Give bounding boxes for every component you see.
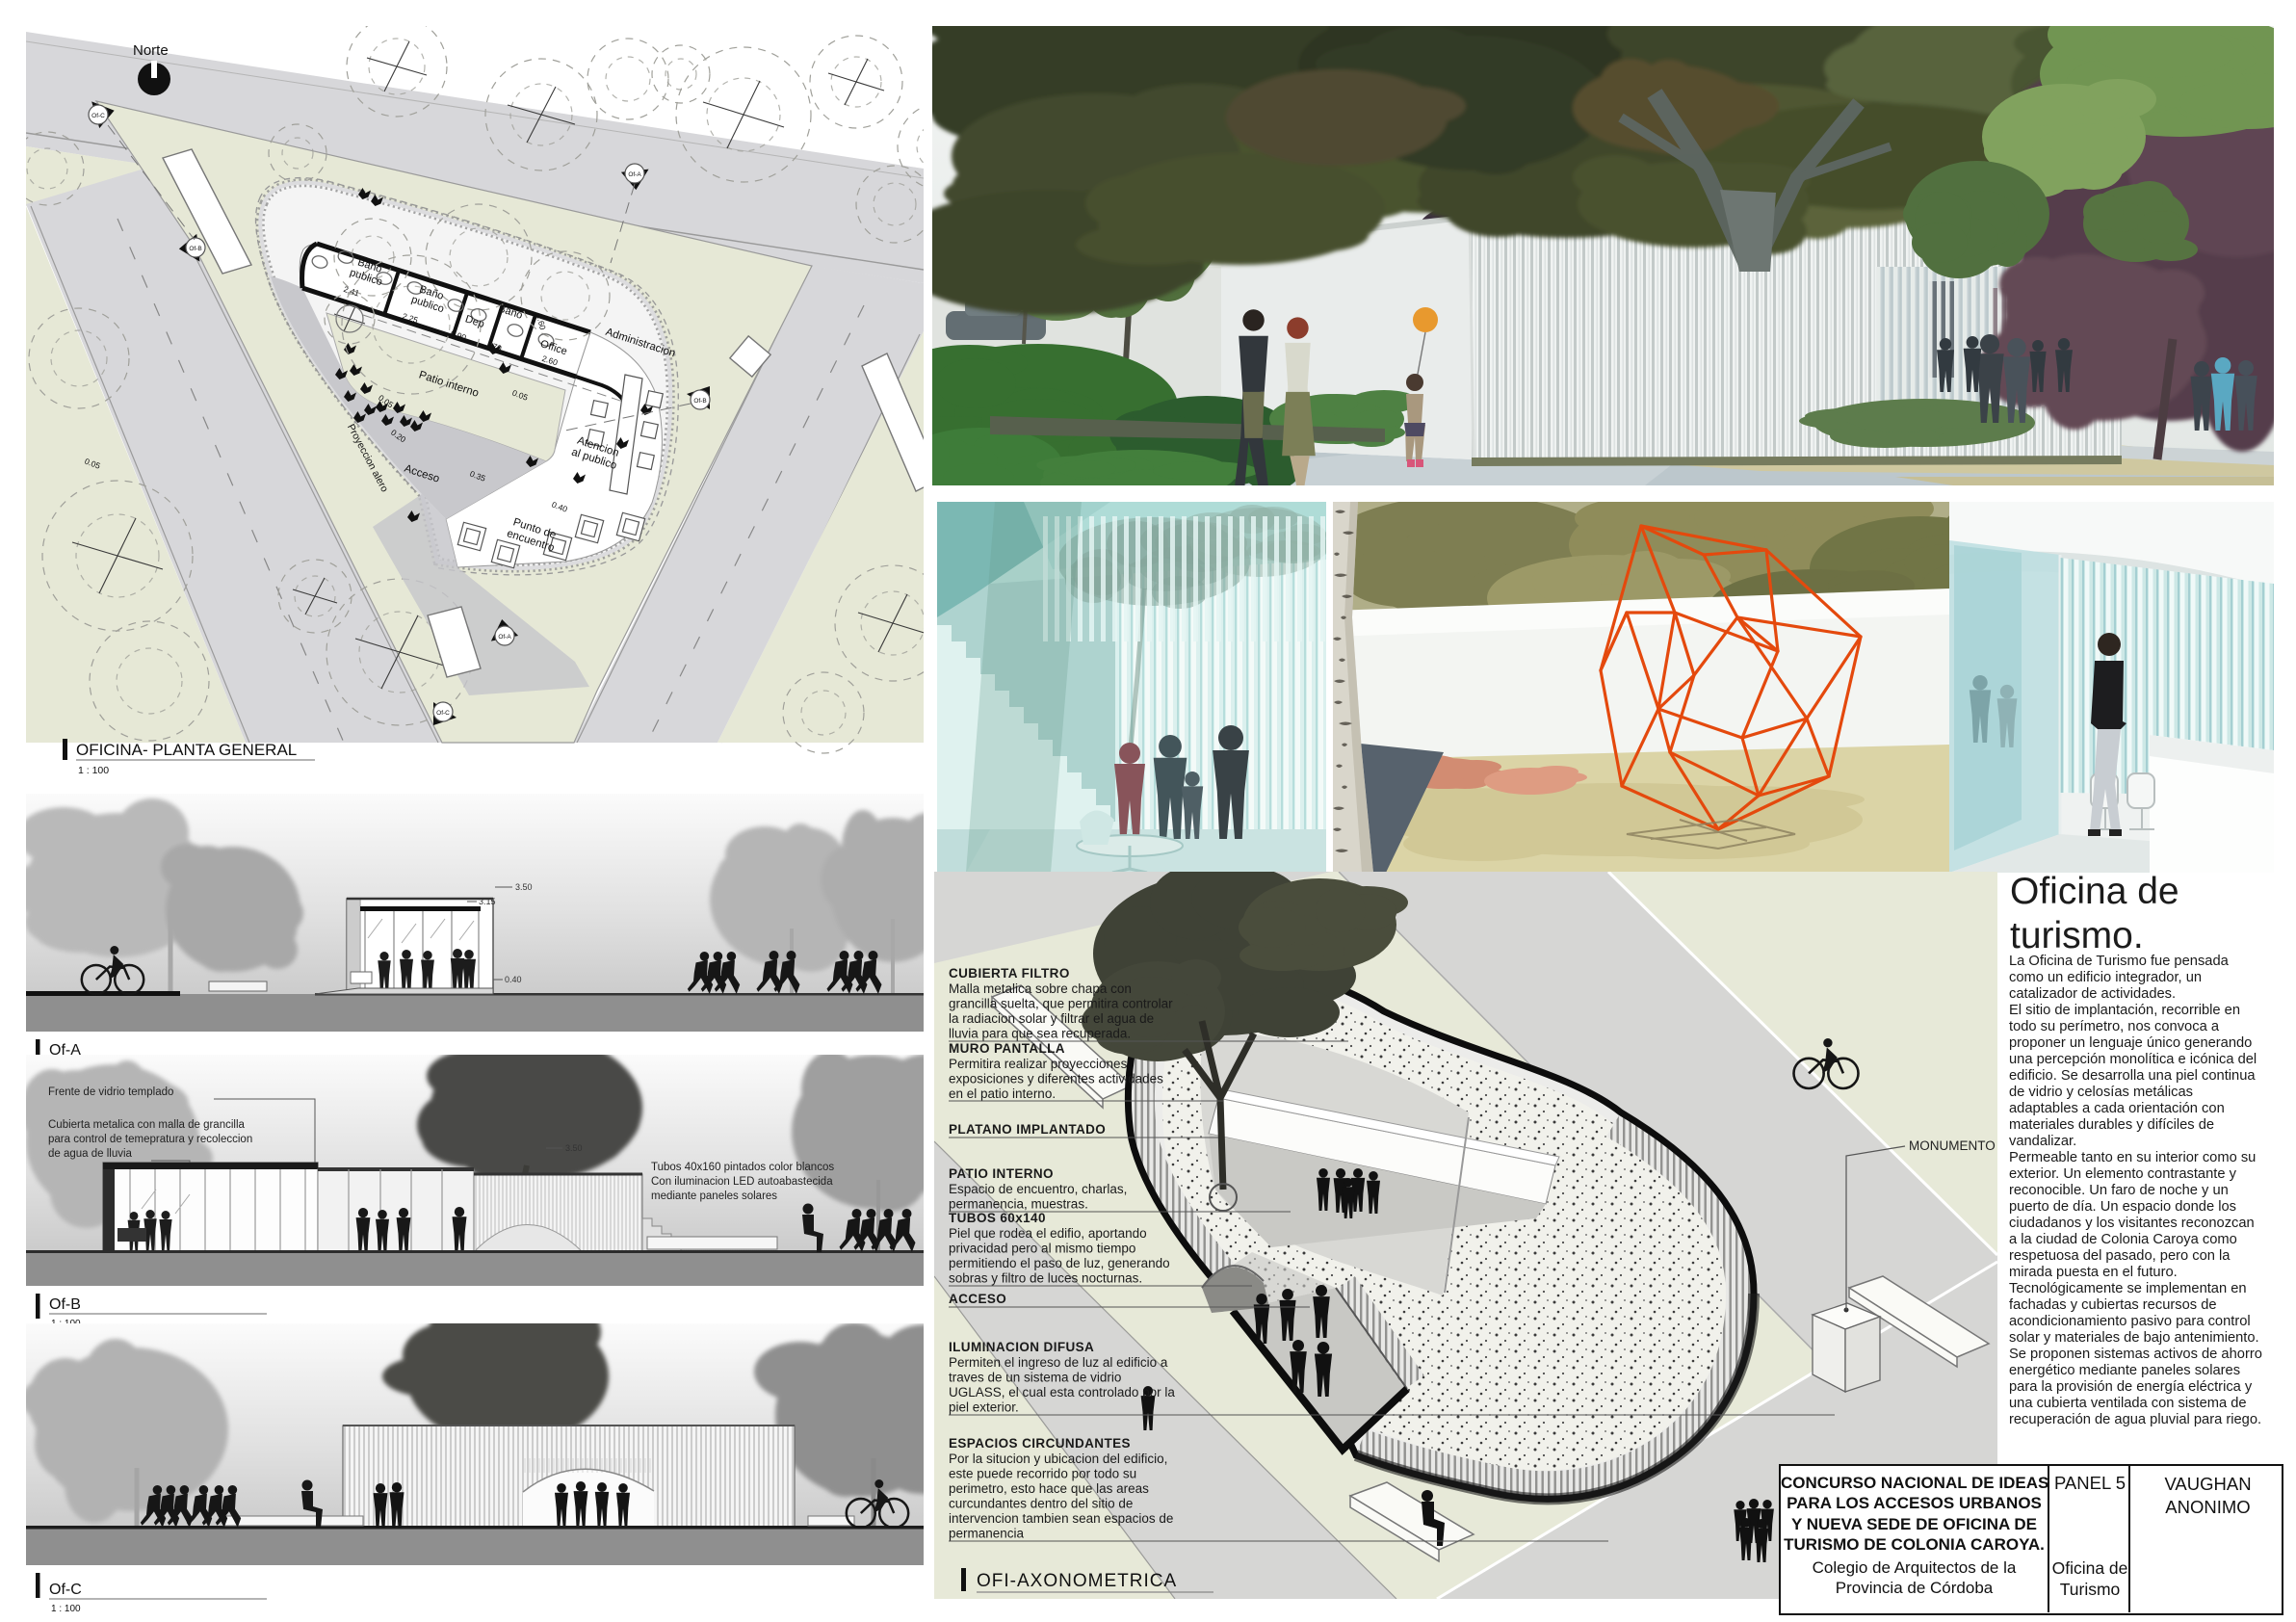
svg-text:de agua de lluvia: de agua de lluvia	[48, 1148, 133, 1160]
svg-text:grancilla suelta, que permitir: grancilla suelta, que permitira controla…	[949, 997, 1173, 1011]
svg-text:Of-A: Of-A	[498, 634, 511, 641]
svg-text:Norte: Norte	[133, 42, 169, 59]
svg-text:lluvia para que sea recuperada: lluvia para que sea recuperada.	[949, 1027, 1131, 1041]
svg-text:Cubierta metalica con malla de: Cubierta metalica con malla de grancilla	[48, 1119, 246, 1131]
svg-text:Tubos 40x160 pintados color bl: Tubos 40x160 pintados color blancos	[651, 1162, 834, 1173]
svg-text:permanencia, muestras.: permanencia, muestras.	[949, 1197, 1088, 1212]
svg-text:OFICINA- PLANTA GENERAL: OFICINA- PLANTA GENERAL	[76, 741, 297, 759]
svg-text:Piel que rodea el edifio, apor: Piel que rodea el edifio, aportando	[949, 1226, 1147, 1241]
svg-text:Frente de vidrio templado: Frente de vidrio templado	[48, 1086, 173, 1098]
svg-text:Of-A: Of-A	[628, 171, 641, 178]
svg-text:intervencion tambien sean espa: intervencion tambien sean espacios de	[949, 1511, 1173, 1526]
svg-text:perimetro, esto hace que las a: perimetro, esto hace que las areas	[949, 1481, 1149, 1496]
svg-text:1 : 100: 1 : 100	[78, 765, 109, 776]
svg-text:3.50: 3.50	[565, 1143, 583, 1153]
svg-text:Of-C: Of-C	[91, 113, 105, 119]
svg-text:piel exterior.: piel exterior.	[949, 1400, 1019, 1415]
svg-text:Espacio de encuentro, charlas,: Espacio de encuentro, charlas,	[949, 1182, 1127, 1196]
svg-text:para control de temepratura y: para control de temepratura y recoleccio…	[48, 1134, 252, 1145]
svg-text:curcundantes dentro del sitio: curcundantes dentro del sitio de	[949, 1497, 1133, 1511]
svg-text:privacidad pero al mismo tiemp: privacidad pero al mismo tiempo	[949, 1242, 1135, 1256]
svg-text:Por la situcion y ubicacion de: Por la situcion y ubicacion del edificio…	[949, 1452, 1167, 1466]
svg-text:permanencia: permanencia	[949, 1527, 1025, 1541]
svg-text:3.15: 3.15	[479, 897, 496, 906]
svg-text:1 : 100: 1 : 100	[51, 1604, 81, 1611]
svg-text:UGLASS, el cual esta controlad: UGLASS, el cual esta controlado por la	[949, 1385, 1175, 1400]
svg-text:traves de un sistema de vidrio: traves de un sistema de vidrio	[949, 1371, 1121, 1385]
svg-text:la radiacion solar y filtrar e: la radiacion solar y filtrar el agua de	[949, 1011, 1154, 1026]
svg-text:en el patio interno.: en el patio interno.	[949, 1086, 1056, 1101]
svg-text:Of-C: Of-C	[49, 1582, 82, 1598]
svg-text:Of-B: Of-B	[49, 1296, 81, 1313]
svg-text:CUBIERTA FILTRO: CUBIERTA FILTRO	[949, 966, 1070, 981]
svg-text:MONUMENTO: MONUMENTO	[1909, 1138, 1996, 1153]
svg-text:este puede recorrido por todo: este puede recorrido por todo su	[949, 1467, 1136, 1481]
svg-text:ACCESO: ACCESO	[949, 1292, 1006, 1306]
svg-text:permitiendo el paso de luz, ge: permitiendo el paso de luz, generando	[949, 1256, 1170, 1270]
svg-text:3.50: 3.50	[515, 882, 533, 892]
svg-text:Of-B: Of-B	[693, 398, 706, 405]
svg-text:0.40: 0.40	[505, 975, 522, 984]
svg-text:Of-B: Of-B	[189, 246, 201, 252]
svg-text:mediante paneles solares: mediante paneles solares	[651, 1190, 777, 1202]
svg-text:exposiciones y diferentes acti: exposiciones y diferentes actividades	[949, 1072, 1163, 1086]
svg-text:Con iluminacion LED autoabaste: Con iluminacion LED autoabastecida	[651, 1176, 833, 1188]
svg-text:Permiten el ingreso de luz al: Permiten el ingreso de luz al edificio a	[949, 1355, 1168, 1370]
svg-text:MURO PANTALLA: MURO PANTALLA	[949, 1041, 1065, 1056]
svg-text:Of-C: Of-C	[436, 710, 450, 717]
svg-text:OFI-AXONOMETRICA: OFI-AXONOMETRICA	[977, 1571, 1177, 1591]
svg-text:ESPACIOS CIRCUNDANTES: ESPACIOS CIRCUNDANTES	[949, 1436, 1131, 1451]
svg-text:sobras y filtro de luces noctu: sobras y filtro de luces nocturnas.	[949, 1271, 1142, 1286]
svg-text:Permitira realizar proyeccione: Permitira realizar proyecciones	[949, 1057, 1128, 1071]
svg-text:PLATANO IMPLANTADO: PLATANO IMPLANTADO	[949, 1122, 1106, 1137]
svg-text:TUBOS 60x140: TUBOS 60x140	[949, 1211, 1046, 1225]
svg-text:Malla metalica sobre chapa con: Malla metalica sobre chapa con	[949, 981, 1132, 996]
svg-text:PATIO INTERNO: PATIO INTERNO	[949, 1166, 1054, 1181]
svg-text:ILUMINACION DIFUSA: ILUMINACION DIFUSA	[949, 1340, 1094, 1354]
